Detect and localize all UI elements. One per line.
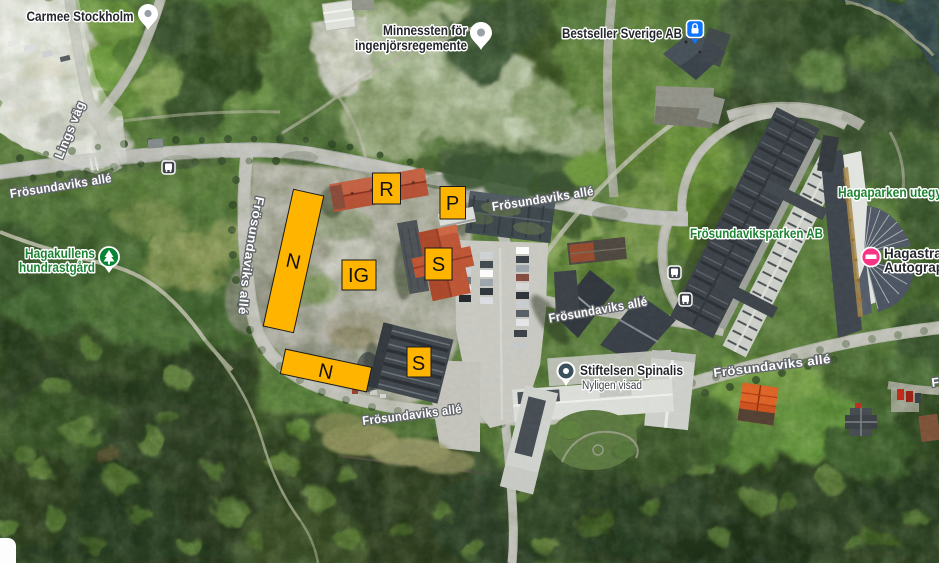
svg-text:Nyligen visad: Nyligen visad: [582, 380, 642, 392]
svg-text:Hagakullens: Hagakullens: [25, 246, 95, 261]
svg-text:Hagastran: Hagastran: [884, 246, 939, 261]
svg-text:Stiftelsen Spinalis: Stiftelsen Spinalis: [580, 363, 683, 378]
svg-text:Autograph: Autograph: [884, 260, 939, 275]
svg-text:Minnessten för: Minnessten för: [383, 23, 468, 38]
svg-text:hundrastgård: hundrastgård: [19, 260, 95, 275]
svg-text:R: R: [379, 179, 393, 201]
svg-text:IG: IG: [348, 265, 369, 287]
svg-text:Bestseller Sverige AB: Bestseller Sverige AB: [562, 26, 682, 41]
svg-text:P: P: [446, 193, 459, 215]
svg-text:Frösundaviksparken AB: Frösundaviksparken AB: [690, 226, 823, 241]
svg-text:F: F: [931, 375, 939, 390]
svg-text:S: S: [412, 353, 425, 375]
svg-text:S: S: [432, 254, 445, 276]
svg-text:Hagaparken utegy: Hagaparken utegy: [838, 185, 939, 200]
svg-text:Carmee Stockholm: Carmee Stockholm: [27, 9, 134, 24]
svg-text:ingenjörsregemente: ingenjörsregemente: [355, 38, 467, 53]
